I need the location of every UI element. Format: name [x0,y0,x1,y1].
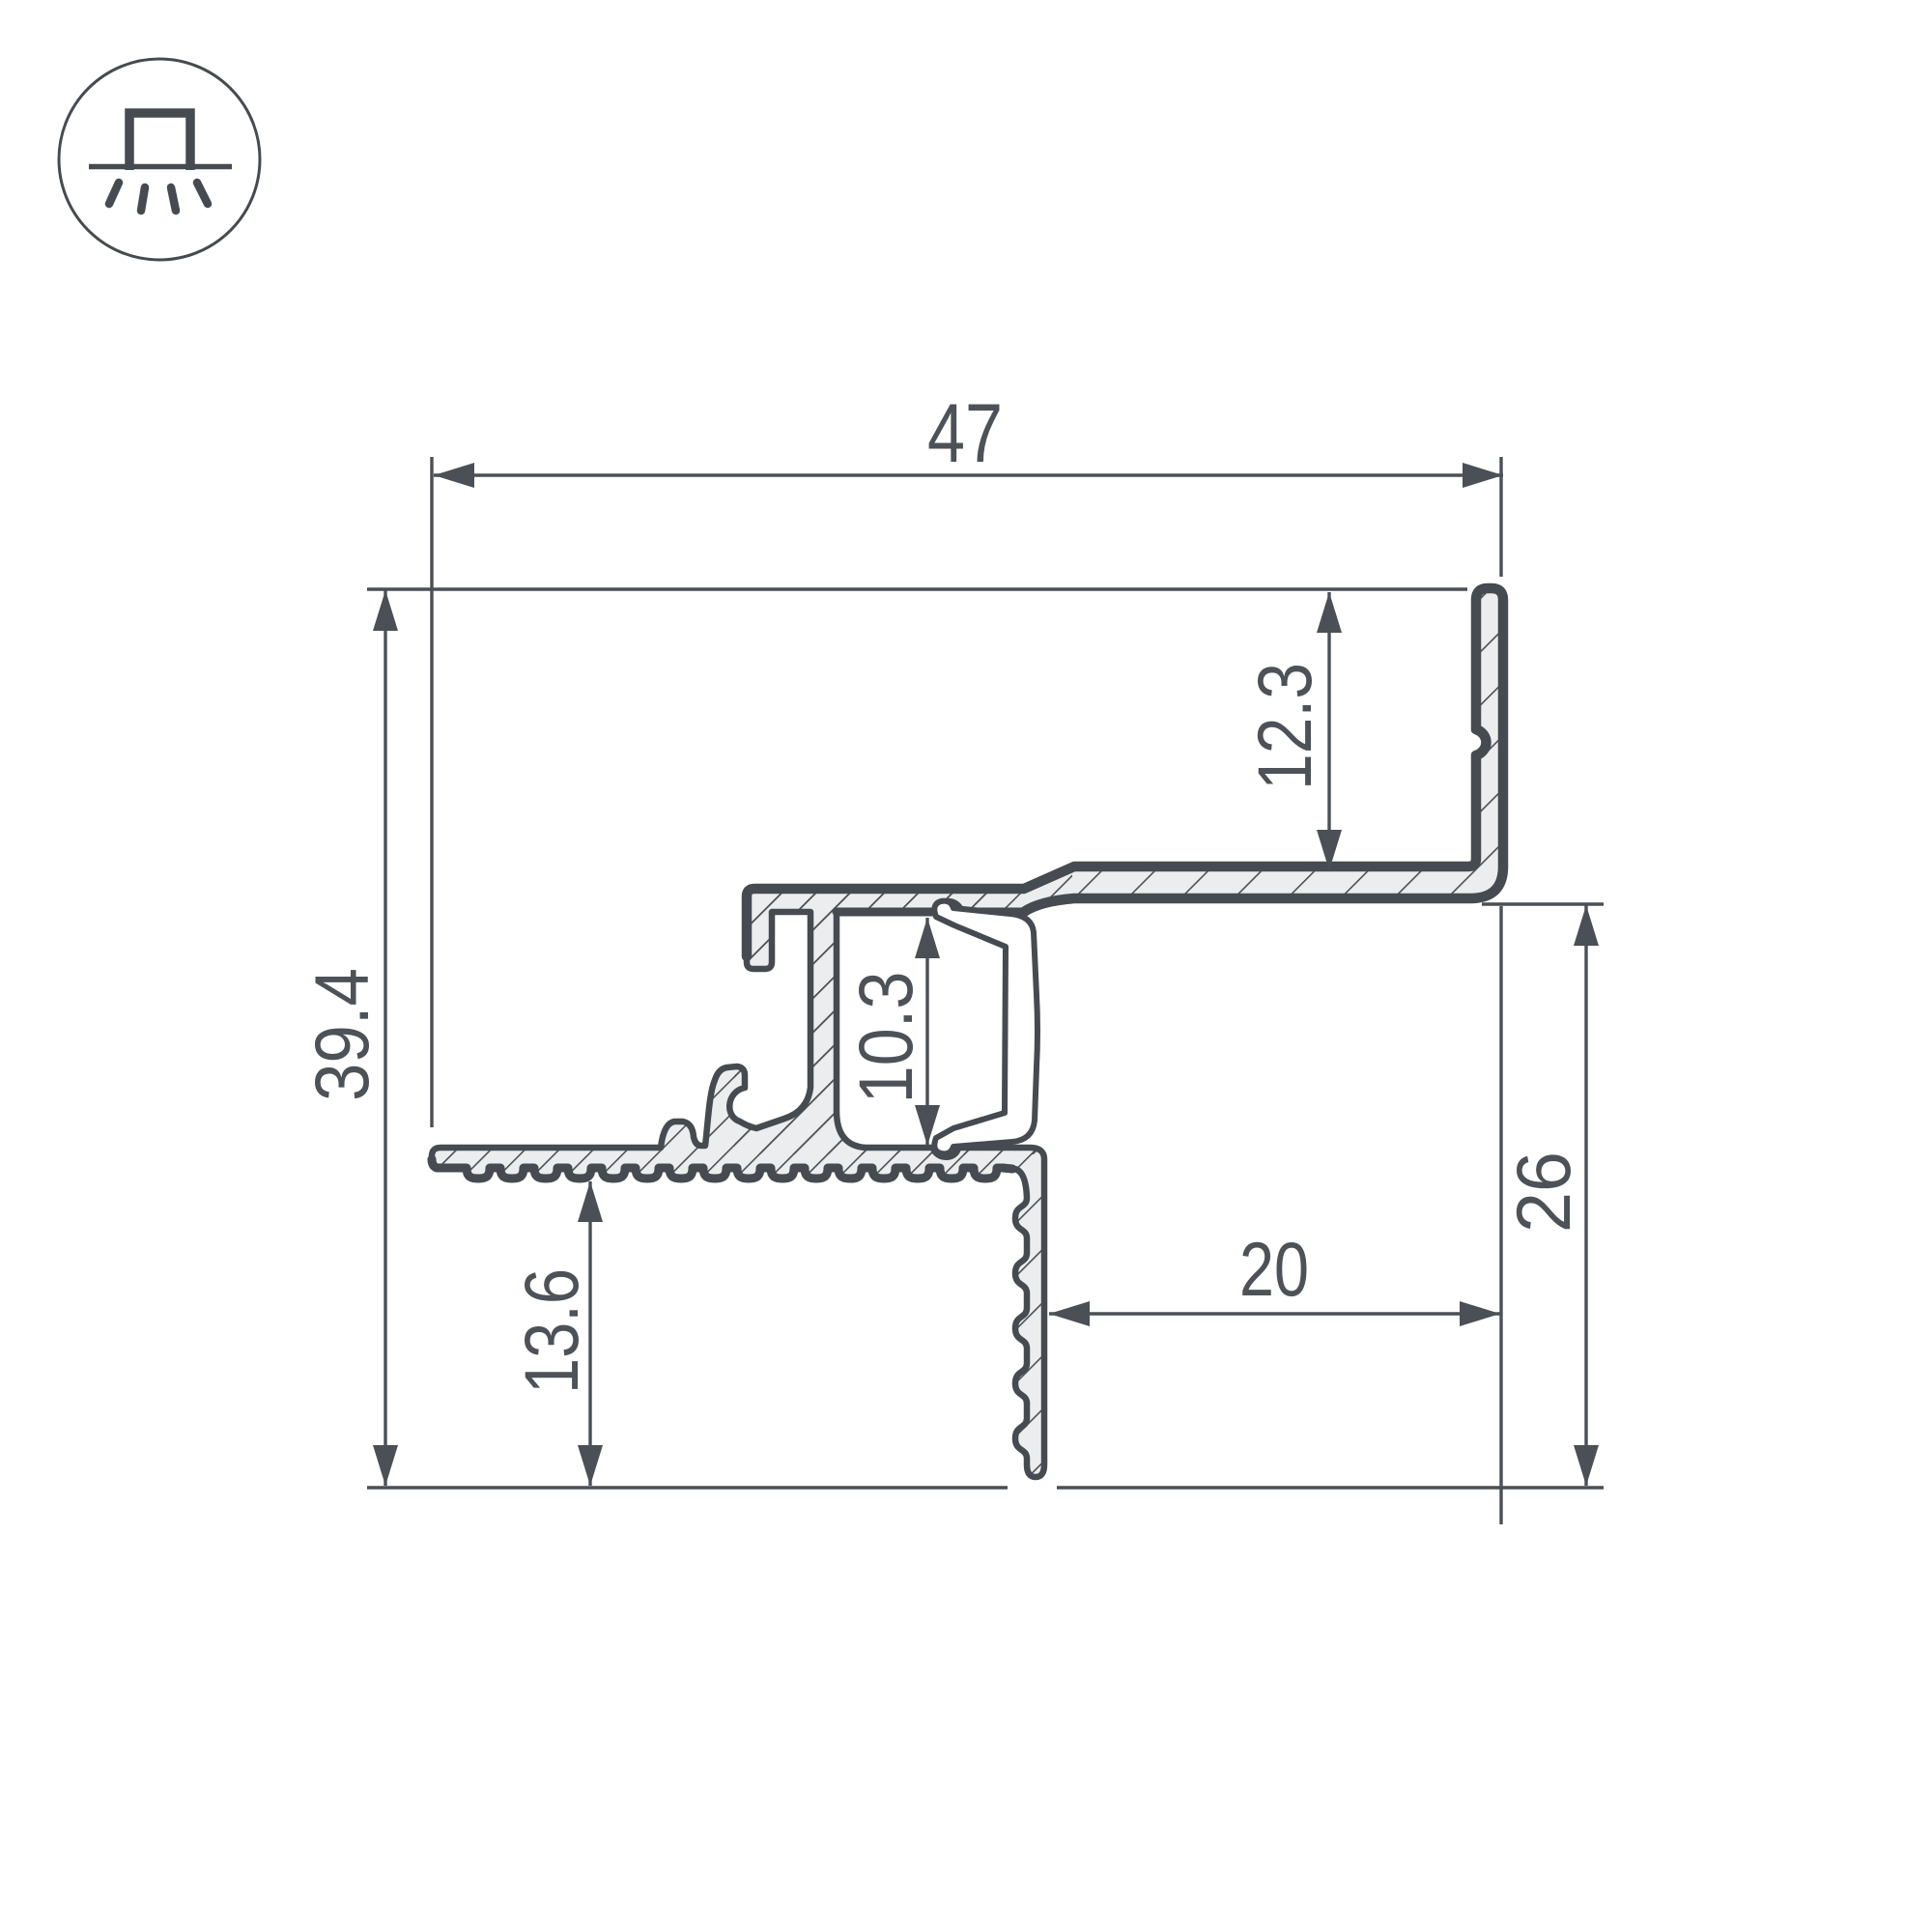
svg-text:39.4: 39.4 [298,968,384,1101]
svg-text:20: 20 [1239,1226,1309,1312]
svg-text:10.3: 10.3 [842,972,928,1104]
svg-text:12.3: 12.3 [1241,663,1327,790]
svg-text:47: 47 [927,387,1003,480]
svg-text:26: 26 [1500,1151,1586,1233]
svg-text:13.6: 13.6 [508,1268,594,1394]
